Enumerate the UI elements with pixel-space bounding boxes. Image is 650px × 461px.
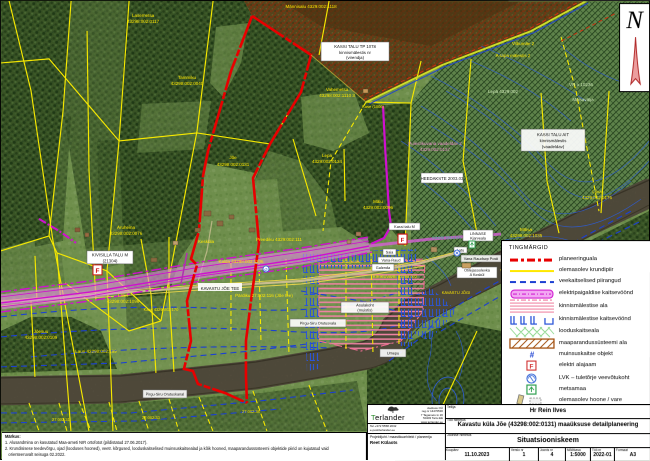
svg-text:Pirgu-Siru Orutusvala: Pirgu-Siru Orutusvala [300, 321, 337, 325]
svg-text:F: F [529, 364, 533, 371]
svg-text:4329:002:0137: 4329:002:0137 [420, 147, 451, 152]
svg-text:(muistis): (muistis) [357, 308, 373, 313]
svg-text:43298:002:1110 3: 43298:002:1110 3 [319, 93, 355, 98]
svg-text:Kase (1006): Kase (1006) [362, 104, 384, 109]
svg-text:(21304): (21304) [103, 258, 118, 263]
svg-text:Pirgu-Siru Orutuskanal: Pirgu-Siru Orutuskanal [146, 392, 185, 396]
svg-text:Suupealu: Suupealu [341, 259, 361, 264]
svg-text:27:002:33: 27:002:33 [142, 415, 161, 420]
svg-text:A Keskül: A Keskül [470, 273, 485, 277]
svg-text:Kase 4329:002:170: Kase 4329:002:170 [144, 307, 179, 312]
svg-text:LINNASE: LINNASE [470, 232, 487, 236]
svg-text:Liiva: Liiva [592, 189, 602, 194]
svg-text:Mälu: Mälu [373, 199, 383, 204]
svg-text:Preediku 4329:002:111: Preediku 4329:002:111 [256, 237, 302, 242]
svg-text:Mõisavälja: Mõisavälja [572, 97, 594, 102]
svg-text:43298:002:0076: 43298:002:0076 [110, 231, 143, 236]
svg-text:Kalda 43298:002:1106: Kalda 43298:002:1106 [219, 259, 264, 264]
svg-text:43298:002:0131: 43298:002:0131 [217, 162, 250, 167]
svg-text:#: # [530, 351, 535, 360]
svg-text:HEEDAKSTE 2003.03: HEEDAKSTE 2003.03 [421, 176, 464, 181]
svg-text:43298:002:1096: 43298:002:1096 [107, 299, 140, 304]
svg-text:A-tapa mälestis 2: A-tapa mälestis 2 [496, 53, 531, 58]
svg-text:Kjarveala: Kjarveala [470, 237, 487, 241]
svg-text:(vaadeldav): (vaadeldav) [542, 144, 565, 149]
svg-text:KASSI TALU AIT: KASSI TALU AIT [537, 132, 569, 137]
svg-text:Galenda: Galenda [376, 266, 391, 270]
svg-text:Kassi talu M: Kassi talu M [394, 225, 415, 229]
svg-text:Puiestikuvana vaadeldav 2: Puiestikuvana vaadeldav 2 [408, 141, 462, 146]
svg-text:kinnismälestis: kinnismälestis [540, 138, 567, 143]
svg-text:Vilbumäe 2: Vilbumäe 2 [512, 41, 535, 46]
svg-text:KIRIKUVARE 43298:002: KIRIKUVARE 43298:002 [373, 274, 418, 279]
svg-text:Lauri 43298:002:199: Lauri 43298:002:199 [75, 349, 117, 354]
svg-text:27:002:31: 27:002:31 [52, 417, 71, 422]
svg-text:43298:002:0040: 43298:002:0040 [171, 81, 204, 86]
svg-text:43298:002:0117: 43298:002:0117 [127, 19, 160, 24]
svg-text:Vana-Raud: Vana-Raud [382, 259, 401, 263]
svg-text:KIVISILLA TALU M: KIVISILLA TALU M [92, 252, 129, 257]
svg-text:Kesküla: Kesküla [198, 239, 215, 244]
svg-text:Umepu: Umepu [387, 352, 399, 356]
svg-text:Lepa: Lepa [322, 153, 333, 158]
svg-text:Jõesuu: Jõesuu [34, 329, 49, 334]
svg-text:KAVASTU JÕE TEE: KAVASTU JÕE TEE [201, 286, 240, 291]
svg-text:Tammiku: Tammiku [178, 75, 197, 80]
svg-text:4329:002:0176: 4329:002:0176 [582, 195, 613, 200]
svg-text:Lauri: Lauri [118, 293, 128, 298]
svg-text:27:002:35: 27:002:35 [242, 409, 261, 414]
svg-text:4329:002:0096: 4329:002:0096 [363, 205, 394, 210]
svg-text:Mõisa: Mõisa [520, 227, 533, 232]
svg-text:Saia: Saia [386, 251, 394, 255]
svg-text:Männisalu 4329:002:1118: Männisalu 4329:002:1118 [286, 4, 338, 9]
svg-text:KAVASTU JÕGI: KAVASTU JÕGI [442, 290, 471, 295]
svg-text:F: F [95, 268, 99, 275]
svg-text:Lepä 4329:002: Lepä 4329:002 [488, 89, 519, 94]
svg-text:Lasemetsa: Lasemetsa [132, 13, 155, 18]
svg-text:Vana-Raudsep Posti: Vana-Raudsep Posti [464, 257, 499, 261]
svg-text:Otilejasoolevka: Otilejasoolevka [464, 269, 491, 273]
svg-text:Aruheina: Aruheina [117, 225, 136, 230]
svg-text:Vahemetsa: Vahemetsa [326, 87, 349, 92]
svg-text:VR o 10236: VR o 10236 [569, 82, 593, 87]
svg-text:Jõe: Jõe [229, 155, 237, 160]
svg-text:(virendja): (virendja) [346, 55, 364, 60]
svg-text:KASSI TALU TP 1078: KASSI TALU TP 1078 [334, 44, 376, 49]
svg-text:43298:002:1035: 43298:002:1035 [510, 233, 543, 238]
svg-text:Ø: Ø [264, 267, 267, 272]
svg-text:4329:002:0134: 4329:002:0134 [312, 159, 343, 164]
svg-text:43298:002:0109: 43298:002:0109 [25, 335, 58, 340]
svg-text:KASSI TALU KV: KASSI TALU KV [432, 235, 462, 240]
svg-text:Pärdiku 27:002:116 (Jõe tee): Pärdiku 27:002:116 (Jõe tee) [235, 293, 293, 298]
svg-text:F: F [401, 238, 405, 244]
